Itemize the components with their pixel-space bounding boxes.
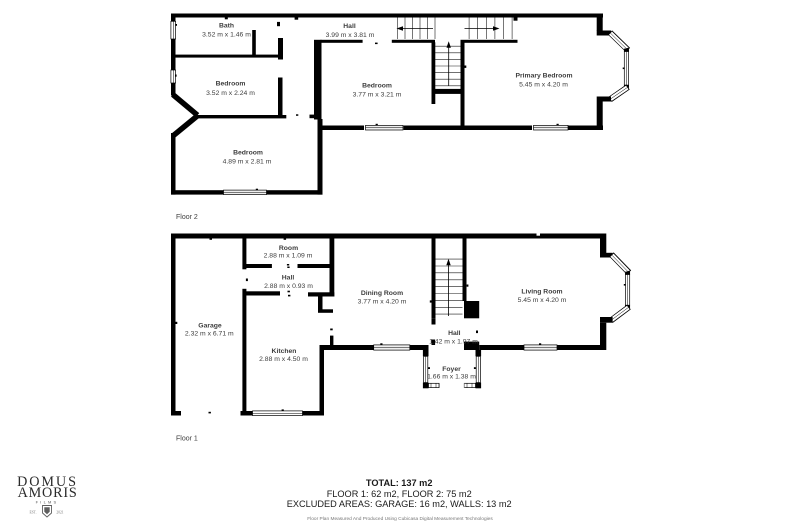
svg-text:3.77 m x 4.20 m: 3.77 m x 4.20 m (358, 298, 407, 305)
svg-text:2021: 2021 (56, 511, 63, 515)
svg-text:2.88 m x 1.09 m: 2.88 m x 1.09 m (264, 252, 313, 259)
svg-text:Hall: Hall (448, 330, 461, 337)
svg-text:EXCLUDED AREAS: GARAGE: 16 m2,: EXCLUDED AREAS: GARAGE: 16 m2, WALLS: 13… (287, 499, 512, 509)
svg-text:2.88 m x 4.50 m: 2.88 m x 4.50 m (259, 356, 308, 363)
svg-text:FILMS: FILMS (36, 500, 59, 505)
svg-text:5.45 m x 4.20 m: 5.45 m x 4.20 m (519, 82, 568, 89)
svg-text:FLOOR 1: 62 m2, FLOOR 2: 75 m2: FLOOR 1: 62 m2, FLOOR 2: 75 m2 (327, 489, 472, 499)
svg-text:EST.: EST. (29, 511, 36, 515)
svg-text:1.42 m x 1.97 m: 1.42 m x 1.97 m (429, 338, 478, 345)
svg-text:Dining Room: Dining Room (361, 290, 403, 297)
svg-text:2.88 m x 0.93 m: 2.88 m x 0.93 m (264, 283, 313, 290)
svg-text:Primary Bedroom: Primary Bedroom (515, 73, 572, 80)
svg-text:Floor 1: Floor 1 (176, 436, 198, 443)
svg-text:1.66 m x 1.38 m: 1.66 m x 1.38 m (427, 373, 476, 380)
svg-text:3.52 m x 2.24 m: 3.52 m x 2.24 m (206, 90, 255, 97)
svg-text:Room: Room (279, 245, 298, 252)
svg-text:3.99 m x 3.81 m: 3.99 m x 3.81 m (326, 32, 375, 39)
svg-text:Floor Plan Measured And Produc: Floor Plan Measured And Produced Using C… (307, 516, 493, 522)
svg-text:Living Room: Living Room (521, 288, 562, 295)
svg-text:5.45 m x 4.20 m: 5.45 m x 4.20 m (518, 297, 567, 304)
svg-text:Floor 2: Floor 2 (176, 214, 198, 221)
svg-text:Bedroom: Bedroom (216, 81, 246, 88)
svg-text:Hall: Hall (282, 274, 295, 281)
svg-text:3.77 m x 3.21 m: 3.77 m x 3.21 m (353, 92, 402, 99)
svg-text:3.52 m x 1.46 m: 3.52 m x 1.46 m (202, 31, 251, 38)
svg-text:Garage: Garage (198, 322, 222, 329)
svg-text:Bedroom: Bedroom (362, 83, 392, 90)
svg-text:4.89 m x 2.81 m: 4.89 m x 2.81 m (223, 158, 272, 165)
svg-text:2.32 m x 6.71 m: 2.32 m x 6.71 m (185, 331, 234, 338)
svg-text:TOTAL: 137 m2: TOTAL: 137 m2 (366, 478, 433, 488)
svg-text:Bedroom: Bedroom (233, 150, 263, 157)
svg-text:Hall: Hall (343, 23, 356, 30)
svg-text:Kitchen: Kitchen (272, 348, 297, 355)
svg-text:Foyer: Foyer (442, 366, 461, 373)
svg-text:Bath: Bath (219, 23, 234, 30)
svg-text:AMORIS: AMORIS (18, 485, 78, 501)
